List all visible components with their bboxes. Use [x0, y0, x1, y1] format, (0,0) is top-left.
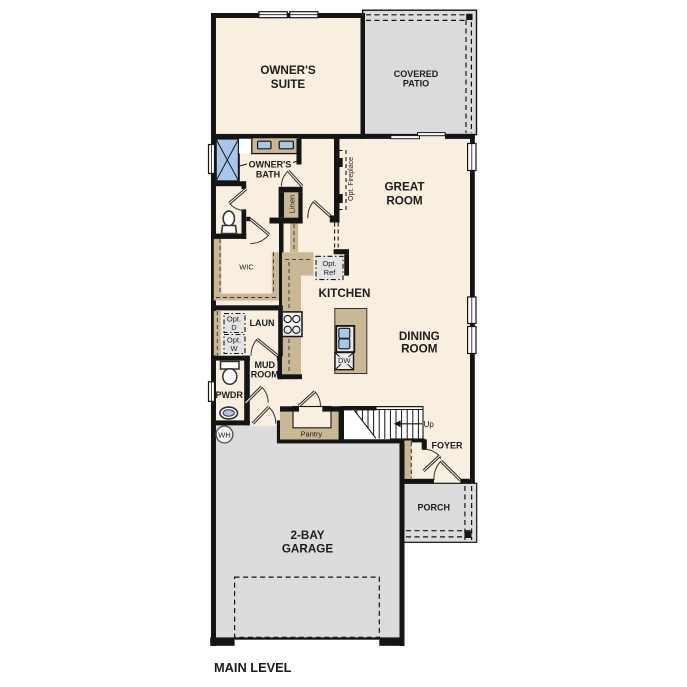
svg-text:DW: DW [338, 356, 351, 365]
svg-text:ROOM: ROOM [251, 369, 279, 379]
svg-text:SUITE: SUITE [271, 78, 306, 91]
svg-text:Ref: Ref [324, 268, 337, 277]
svg-text:WH: WH [218, 430, 231, 439]
svg-text:GREAT: GREAT [384, 180, 425, 193]
svg-text:WIC: WIC [239, 263, 254, 272]
svg-text:ROOM: ROOM [401, 343, 437, 356]
svg-text:KITCHEN: KITCHEN [319, 287, 371, 300]
svg-text:PWDR: PWDR [215, 390, 243, 400]
svg-text:OWNER'S: OWNER'S [260, 64, 316, 77]
svg-text:MAIN LEVEL: MAIN LEVEL [214, 660, 292, 675]
svg-text:PORCH: PORCH [418, 503, 451, 513]
svg-text:ROOM: ROOM [386, 194, 422, 207]
svg-text:DINING: DINING [399, 330, 440, 343]
svg-text:Linen: Linen [288, 195, 297, 213]
svg-text:Pantry: Pantry [300, 430, 322, 439]
svg-text:BATH: BATH [256, 169, 280, 179]
svg-text:PATIO: PATIO [403, 78, 429, 88]
svg-text:OWNER'S: OWNER'S [249, 159, 292, 169]
svg-text:LAUN: LAUN [250, 318, 275, 328]
svg-text:Opt. Fireplace: Opt. Fireplace [348, 157, 355, 201]
svg-text:W: W [230, 344, 238, 353]
svg-text:FOYER: FOYER [431, 441, 463, 451]
svg-text:GARAGE: GARAGE [282, 543, 334, 556]
svg-text:2-BAY: 2-BAY [291, 529, 325, 542]
svg-text:Up: Up [424, 420, 435, 429]
svg-text:D: D [231, 323, 237, 332]
svg-text:Opt.: Opt. [322, 259, 336, 268]
